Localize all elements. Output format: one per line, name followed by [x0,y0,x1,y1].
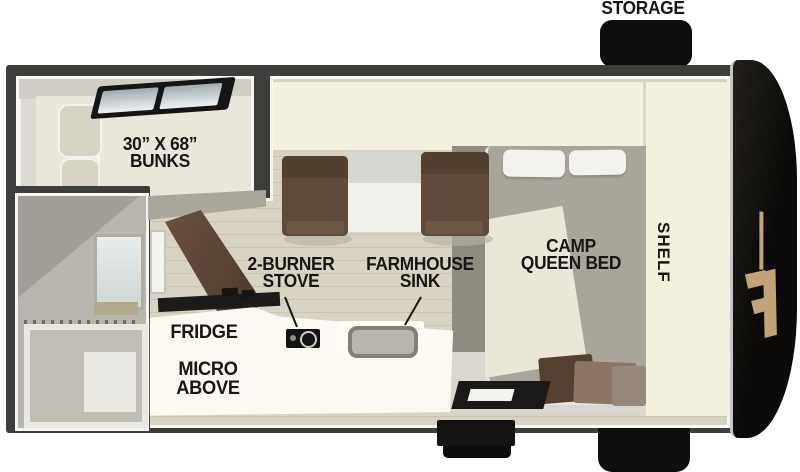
dinette-seat [421,152,489,236]
bathroom-window [94,234,144,310]
micro-label-line1: MICRO [160,360,256,379]
bed-pillow [503,149,565,177]
micro-label-line2: ABOVE [160,379,256,398]
skylight-pane [159,83,222,109]
entry-step [437,420,515,446]
foot-cushion [612,366,646,406]
fridge-label: FRIDGE [160,324,248,341]
stove-label-line2: STOVE [229,273,354,290]
storage-pod [600,20,692,67]
floorplan-diagram: STORAGE [0,0,800,472]
brand-f-logo-icon [737,208,796,341]
step-well-opening [467,389,514,401]
seat-cushion-edge [286,221,344,234]
sink-label: FARMHOUSE SINK [355,256,486,290]
bed-label-line2: QUEEN BED [501,255,641,272]
storage-label: STORAGE [566,0,720,17]
seat-cushion-edge [425,221,483,234]
galley-window [150,230,166,294]
bed-label: CAMP QUEEN BED [501,238,641,272]
bathroom-shelf [94,302,138,315]
bunks-label-line2: BUNKS [98,153,223,170]
dinette-seat [282,156,348,236]
stove-label: 2-BURNER STOVE [229,256,354,290]
bed-pillow [569,150,626,176]
bunk-divider-wall [251,76,273,201]
micro-label: MICRO ABOVE [160,360,256,398]
seat-backrest [421,152,489,174]
bunks-label: 30” X 68” BUNKS [98,136,223,170]
counter-hardware [242,290,254,298]
stove-dial-icon [290,335,296,341]
dinette-table [348,150,422,232]
front-cap [730,60,797,438]
entry-step-well [451,381,551,409]
burner-ring-icon [300,331,317,348]
entry-step-lip [443,446,511,458]
stove-icon [286,329,320,348]
rear-storage-pod [598,428,690,472]
shelf-label: SHELF [645,206,673,298]
bathtub-floor [84,352,136,412]
skylight-pane [97,87,158,113]
seat-backrest [282,156,348,178]
sink-basin-icon [348,326,418,358]
sink-label-line2: SINK [355,273,486,290]
